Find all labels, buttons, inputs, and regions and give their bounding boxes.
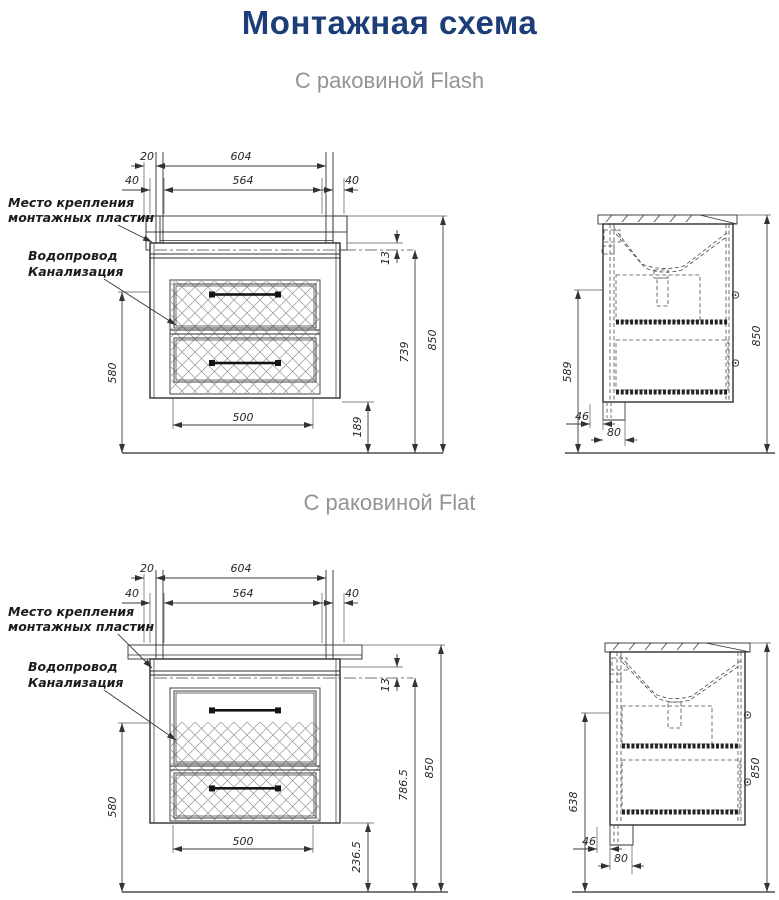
- label-water-supply: Водопровод: [28, 248, 118, 263]
- dim-plate-below-top: 13: [379, 678, 392, 692]
- dim-plate-height: 786.5: [397, 769, 410, 801]
- dim-left-offset: 40: [125, 174, 139, 187]
- dim-plate-span: 564: [233, 174, 254, 187]
- hatch-area: [171, 281, 319, 393]
- dim-total-height-side: 850: [749, 758, 762, 779]
- leader-line: [118, 634, 152, 668]
- dim-cabinet-bottom-height: 236.5: [350, 841, 363, 873]
- dim-plate-span: 564: [233, 587, 254, 600]
- leader-line: [118, 225, 152, 242]
- mounting-studs: [156, 152, 333, 249]
- flash-drawing: 20 604 40 564 40 13 739 850 189 580: [0, 118, 779, 468]
- installation-scheme-page: Монтажная схема С раковиной Flash С рако…: [0, 0, 779, 900]
- dim-total-height: 850: [426, 330, 439, 351]
- label-sewerage: Канализация: [28, 264, 123, 279]
- label-mounting-plates-2: монтажных пластин: [8, 210, 155, 225]
- hatch-area: [171, 722, 319, 820]
- cabinet-body: [150, 243, 413, 398]
- dim-stud-spacing: 20: [140, 150, 154, 163]
- label-mounting-plates-1: Место крепления: [8, 604, 134, 619]
- dim-right-offset: 40: [345, 174, 359, 187]
- dim-drain-offset: 80: [607, 426, 621, 439]
- flat-front-view: [122, 570, 448, 892]
- dim-back-clearance: 46: [575, 410, 589, 423]
- label-sewerage: Канализация: [28, 675, 123, 690]
- dim-back-clearance: 46: [582, 835, 596, 848]
- dim-cabinet-bottom-height: 189: [351, 417, 364, 438]
- subtitle-flat: С раковиной Flat: [0, 490, 779, 516]
- cabinet-body: [150, 659, 413, 823]
- dim-mounting-span: 604: [231, 150, 252, 163]
- flat-side-view: [572, 643, 775, 892]
- dim-supply-height-side: 589: [561, 362, 574, 383]
- flash-side-view: [565, 215, 775, 453]
- flat-drawing: 20 604 40 564 40 13 786.5 850 236.5 580: [0, 540, 779, 900]
- dim-total-height: 850: [423, 758, 436, 779]
- dim-supply-height: 580: [106, 363, 119, 384]
- label-mounting-plates-2: монтажных пластин: [8, 619, 155, 634]
- dim-left-offset: 40: [125, 587, 139, 600]
- dim-supply-height-side: 638: [567, 792, 580, 813]
- label-mounting-plates-1: Место крепления: [8, 195, 134, 210]
- dim-drain-offset: 80: [614, 852, 628, 865]
- dim-drain-span: 500: [233, 835, 254, 848]
- dim-drain-span: 500: [233, 411, 254, 424]
- subtitle-flash: С раковиной Flash: [0, 68, 779, 94]
- label-water-supply: Водопровод: [28, 659, 118, 674]
- flash-front-view: [122, 152, 443, 453]
- dim-stud-spacing: 20: [140, 562, 154, 575]
- page-title: Монтажная схема: [0, 4, 779, 42]
- dim-plate-below-top: 13: [379, 251, 392, 265]
- dim-total-height-side: 850: [750, 326, 763, 347]
- dim-right-offset: 40: [345, 587, 359, 600]
- dim-supply-height: 580: [106, 797, 119, 818]
- dim-plate-height: 739: [398, 342, 411, 363]
- dim-mounting-span: 604: [231, 562, 252, 575]
